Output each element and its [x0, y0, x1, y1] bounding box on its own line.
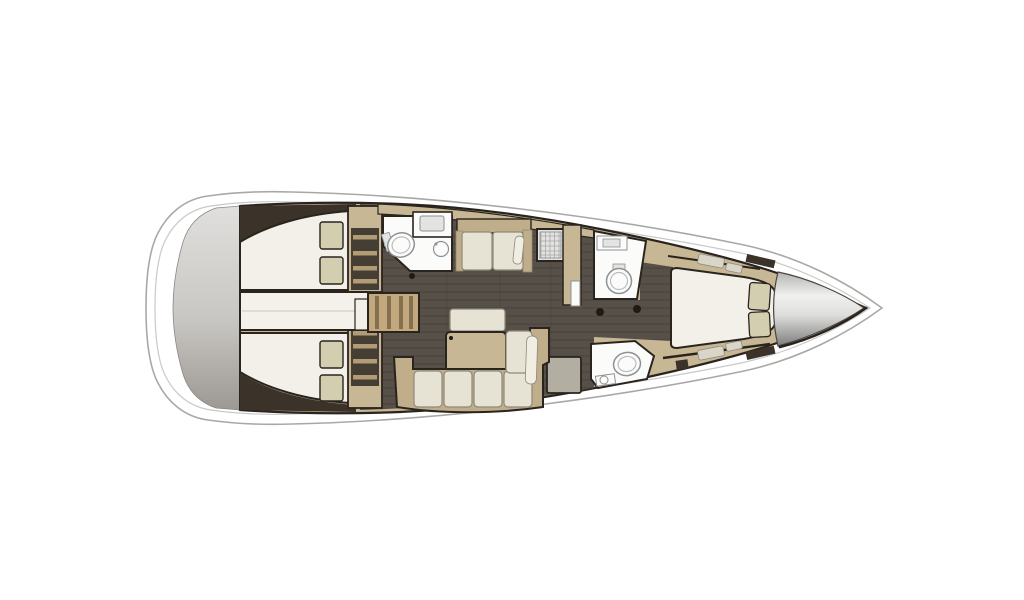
- settee-armrest-right: [523, 230, 532, 272]
- aft-cabin-lower-pillow-2: [320, 375, 343, 401]
- yacht-floorplan-drawing: [0, 0, 1024, 600]
- settee-cushion-1: [462, 232, 492, 270]
- saloon-settee: [456, 219, 532, 272]
- fwd-head-lower-sink-unit: [595, 374, 615, 387]
- aft-cabin-lower-pillow-1: [320, 341, 343, 368]
- corridor-step: [355, 299, 368, 330]
- aft-cabin-upper-pillow-2: [320, 257, 343, 284]
- sofa-cushion-1: [414, 371, 442, 407]
- sofa-cushion-2: [444, 371, 472, 407]
- galley-fridge: [571, 281, 580, 306]
- sofa-cushion-3: [474, 371, 502, 407]
- fwd-cabin-pillow-2: [748, 311, 770, 337]
- table-stool-cushion: [450, 309, 505, 331]
- fwd-cabin-step-block: [676, 359, 689, 370]
- fwd-head-upper: [594, 231, 646, 299]
- sofa-blanket: [525, 336, 538, 384]
- aft-head-faucet: [435, 243, 438, 246]
- fwd-cabin-pillow-1: [748, 282, 771, 310]
- fwd-head-lower-door-pivot: [633, 305, 641, 313]
- nav-bench-seat: [547, 357, 581, 393]
- aft-head-door-pivot: [409, 273, 415, 279]
- aft-head-sink-basin: [420, 216, 444, 231]
- companionway-stairs: [368, 293, 419, 332]
- table-corner-fitting-1: [449, 336, 453, 340]
- fwd-head-upper-sink-basin: [603, 239, 620, 247]
- engine-corridor: [240, 292, 368, 330]
- fwd-head-upper-door-pivot: [596, 308, 604, 316]
- settee-backrest: [457, 219, 531, 233]
- yacht-floorplan-screenshot: [0, 0, 1024, 600]
- aft-cabin-upper-pillow-1: [320, 222, 343, 249]
